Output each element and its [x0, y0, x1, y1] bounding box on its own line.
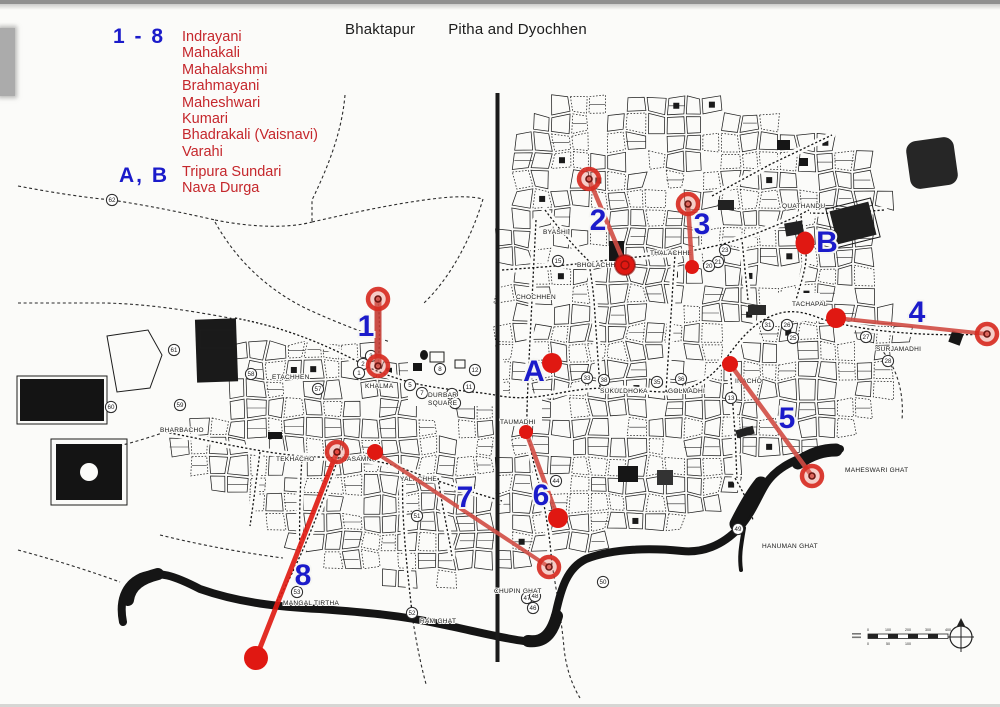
building-block [382, 441, 399, 455]
circled-number-text: 51 [414, 513, 421, 520]
place-label: DURBAR [428, 392, 457, 399]
building-block [649, 151, 665, 169]
building-block [703, 437, 721, 456]
circled-number-text: 13 [728, 395, 735, 402]
building-block [591, 512, 609, 531]
building-block [818, 379, 837, 400]
building-block [626, 113, 646, 134]
building-block [327, 514, 342, 532]
building-block [436, 570, 456, 588]
marker-3-label: 3 [694, 208, 711, 241]
scale-bar-segment [928, 634, 938, 639]
building-block [721, 155, 741, 169]
building-block [266, 513, 286, 530]
building-block [552, 95, 570, 115]
building-block [249, 341, 267, 360]
road-casing [712, 135, 832, 196]
scale-tick-bottom: 50 [886, 642, 890, 646]
legend-item: Maheshwari [182, 95, 318, 111]
building-block [228, 455, 249, 476]
building-block [722, 303, 740, 321]
scale-tick-top: 400 [945, 628, 951, 632]
building-block [798, 417, 816, 438]
marker-B-dot [796, 232, 815, 255]
marker-6-label: 6 [533, 479, 550, 512]
building-block [666, 514, 685, 531]
marker-7-start-dot [367, 444, 383, 460]
legend-list-pithas: Indrayani Mahakali Mahalakshmi Brahmayan… [182, 29, 318, 160]
circled-number-text: 25 [790, 335, 797, 342]
rural-road [215, 220, 312, 226]
building-block [551, 420, 570, 437]
building-block [588, 457, 607, 475]
temple-block [766, 444, 772, 450]
circled-number-text: 12 [472, 367, 479, 374]
scale-bar: 0100200300400050100 [852, 628, 951, 646]
map-title-city: Bhaktapur [345, 21, 415, 38]
scale-tick-top: 0 [867, 628, 869, 632]
building-block [647, 97, 666, 114]
building-block [686, 135, 701, 150]
legend-item: Bhadrakali (Vaisnavi) [182, 127, 318, 143]
compass-rose [948, 618, 974, 652]
building-block [344, 474, 362, 495]
building-block [569, 344, 589, 362]
building-block [361, 532, 380, 550]
building-block [854, 248, 873, 267]
building-block [419, 420, 437, 436]
building-block [420, 436, 437, 455]
building-block [364, 517, 380, 533]
marker-2-label: 2 [590, 204, 607, 237]
circled-number-text: 62 [109, 197, 116, 204]
building-block [512, 153, 532, 170]
building-block [265, 341, 286, 361]
building-block [838, 265, 852, 285]
building-block [685, 400, 703, 419]
pond-or-monument [618, 466, 638, 482]
building-block [665, 418, 682, 438]
building-block [741, 342, 761, 362]
legend-list-letters: Tripura Sundari Nava Durga [182, 164, 281, 197]
building-block [306, 417, 322, 437]
place-label: BHOLACHHE [577, 262, 621, 269]
building-block [284, 398, 304, 418]
building-block [569, 494, 589, 514]
rural-road [18, 550, 120, 582]
building-block [626, 494, 646, 511]
place-label: BYASHI [543, 229, 568, 236]
building-block [573, 152, 588, 170]
building-block [589, 95, 606, 113]
building-block [702, 323, 723, 342]
place-label: BHARBACHO [160, 427, 204, 434]
building-block [573, 438, 585, 455]
building-block [835, 171, 851, 189]
building-block [740, 115, 759, 132]
field-outline [107, 330, 162, 392]
building-block [382, 495, 396, 514]
place-label: SUKULDHOKA [600, 388, 648, 395]
building-block [626, 341, 646, 361]
place-label: GOLMADHI [668, 388, 705, 395]
building-block [743, 211, 757, 226]
building-block [382, 515, 396, 533]
building-block [607, 114, 624, 132]
building-block [667, 117, 685, 134]
building-block [780, 172, 797, 187]
pond-or-monument [905, 136, 959, 190]
building-block [591, 153, 605, 169]
building-block [515, 247, 533, 266]
building-block [229, 379, 244, 399]
place-label: HANUMAN GHAT [762, 543, 818, 550]
building-block [610, 438, 626, 457]
pond-or-monument [718, 200, 734, 210]
pond-or-monument [799, 158, 808, 166]
marker-5-start-dot [722, 356, 738, 372]
bhaktapur-map: 6261605958573215781091112152321203126252… [0, 0, 1000, 707]
temple-block [673, 103, 679, 109]
marker-6-start-dot [519, 425, 533, 439]
marker-5-label: 5 [779, 402, 796, 435]
building-block [759, 190, 780, 208]
legend-item: Nava Durga [182, 180, 281, 196]
building-block [821, 341, 836, 360]
rural-road [18, 303, 235, 319]
building-block [703, 133, 719, 152]
building-block [762, 365, 776, 381]
circled-number-text: 61 [171, 347, 178, 354]
building-block [608, 152, 626, 172]
scale-caption-smudge [852, 637, 861, 639]
building-block [854, 151, 873, 171]
scale-bar-segment [888, 634, 898, 639]
marker-1-end-ring [368, 356, 388, 376]
rural-road [312, 197, 483, 222]
marker-4-label: 4 [909, 296, 926, 329]
temple-block [539, 196, 545, 202]
building-block [512, 208, 530, 229]
building-block [531, 170, 548, 189]
circled-number-text: 23 [722, 247, 729, 254]
place-label: TEKHACHO [276, 456, 315, 463]
building-block [455, 550, 474, 570]
circled-number-text: 8 [438, 366, 442, 373]
building-block [819, 171, 837, 190]
building-block [455, 533, 475, 549]
building-block [667, 136, 685, 152]
building-block [688, 494, 704, 513]
marker-8-end-dot [244, 646, 268, 670]
marker-6-end-dot [548, 508, 568, 528]
building-block [818, 269, 836, 284]
building-block [554, 305, 569, 325]
building-block [666, 151, 684, 172]
marker-3-end-dot [685, 260, 699, 274]
building-block [572, 419, 590, 438]
temple-block [766, 177, 772, 183]
building-block [705, 417, 721, 436]
building-block [722, 288, 739, 303]
building-block [571, 304, 590, 323]
building-block [705, 400, 721, 419]
building-block [743, 152, 758, 169]
building-block [702, 345, 723, 360]
building-block [627, 97, 646, 111]
marker-1-start-ring [368, 289, 388, 309]
building-block [364, 495, 381, 514]
circled-number-text: 27 [863, 334, 870, 341]
building-block [854, 265, 874, 286]
building-block [649, 419, 664, 437]
temple-block [709, 102, 715, 108]
place-label: TAUMADHI [500, 419, 536, 426]
building-block [646, 228, 663, 248]
building-block [721, 133, 739, 152]
temple-block [728, 482, 734, 488]
building-block [627, 399, 646, 418]
building-block [512, 475, 533, 494]
building-block [778, 362, 796, 380]
building-block [475, 550, 493, 570]
temple-block [291, 367, 297, 373]
marker-7-label: 7 [457, 481, 474, 514]
circled-number-text: 5 [408, 382, 412, 389]
temple-block [558, 273, 564, 279]
road-casing [250, 452, 260, 526]
scale-bar-segment [908, 634, 918, 639]
marker-7-end-ring [539, 557, 559, 577]
rural-road [424, 199, 483, 303]
scale-tick-top: 300 [925, 628, 931, 632]
building-block [513, 515, 533, 533]
building-block [418, 532, 436, 551]
circled-number-text: 28 [885, 358, 892, 365]
circled-number-text: 59 [177, 402, 184, 409]
marker-A-dot [542, 353, 562, 373]
building-block [760, 248, 778, 266]
building-block [684, 306, 700, 323]
pond-or-monument [195, 318, 238, 382]
building-block [572, 114, 588, 134]
circled-number-text: 36 [678, 376, 685, 383]
building-block [684, 418, 703, 438]
marker-8-start-ring [327, 442, 347, 462]
building-block [209, 456, 227, 473]
circled-number-text: 7 [420, 390, 424, 397]
building-block [873, 381, 893, 400]
building-block [608, 305, 626, 324]
building-block [512, 189, 533, 208]
building-block [569, 532, 589, 552]
legend-item: Varahi [182, 144, 318, 160]
circled-number-text: 33 [584, 375, 591, 382]
circled-number-text: 57 [315, 386, 322, 393]
pond-or-monument [20, 379, 104, 421]
building-block [266, 493, 283, 511]
building-block [305, 399, 323, 415]
building-block [799, 379, 816, 400]
building-block [778, 379, 797, 400]
circled-number-text: 11 [466, 384, 473, 391]
temple-block [786, 253, 792, 259]
building-block [837, 398, 853, 417]
building-block [759, 132, 777, 150]
building-block [570, 97, 587, 114]
building-block [343, 401, 360, 417]
building-block [608, 192, 628, 209]
place-label: CHUPIN GHAT [494, 588, 542, 595]
building-block [418, 455, 437, 474]
building-block [609, 210, 628, 227]
building-block [609, 494, 625, 510]
pond-or-monument [413, 363, 422, 371]
building-block [646, 494, 666, 511]
building-block [551, 191, 570, 207]
temple-block [632, 518, 638, 524]
building-block [819, 326, 834, 343]
building-block [607, 341, 628, 361]
building-block [247, 399, 267, 418]
building-block [645, 190, 666, 208]
building-block [230, 399, 245, 419]
building-block [382, 569, 396, 587]
pond-or-monument [748, 305, 766, 315]
building-block [645, 514, 666, 531]
pond-or-monument [777, 140, 790, 150]
building-block [607, 132, 625, 153]
scanned-map-page: 6261605958573215781091112152321203126252… [0, 0, 1000, 707]
building-block [515, 132, 533, 151]
building-block [702, 303, 722, 321]
building-block [627, 284, 647, 302]
building-block [588, 399, 608, 416]
building-block [855, 381, 871, 397]
building-block [684, 323, 700, 342]
building-block [456, 456, 476, 476]
circled-number-text: 46 [530, 605, 537, 612]
building-block [740, 189, 759, 209]
building-block [570, 191, 589, 207]
building-block [325, 531, 342, 549]
place-label: TACHAPAL [792, 301, 828, 308]
building-block [837, 419, 856, 438]
building-block [532, 324, 552, 339]
building-block [343, 514, 363, 530]
temple-block [559, 157, 565, 163]
circled-number-text: 1 [357, 370, 361, 377]
building-block [569, 514, 589, 532]
place-label: CHOCHHEN [516, 294, 556, 301]
building-block [725, 265, 741, 285]
building-block [324, 380, 343, 399]
legend-item: Indrayani [182, 29, 318, 45]
scale-tick-bottom: 100 [905, 642, 911, 646]
building-block [570, 476, 589, 491]
river-wide-section [528, 616, 557, 641]
building-block [703, 458, 722, 476]
building-block [551, 326, 568, 342]
pond-island [80, 463, 98, 481]
building-block [572, 457, 589, 475]
circled-number-text: 26 [784, 322, 791, 329]
building-block [817, 284, 835, 302]
building-block [704, 172, 721, 190]
compass-north-arrow [957, 618, 965, 626]
building-block [327, 495, 344, 511]
building-block [211, 476, 225, 492]
building-block [645, 268, 665, 284]
marker-B-label: B [816, 226, 838, 259]
building-block [379, 417, 396, 438]
building-block [854, 170, 875, 188]
building-block [324, 552, 343, 569]
building-block [531, 153, 552, 169]
rural-road [553, 570, 580, 698]
building-block [572, 284, 590, 304]
building-block [798, 403, 816, 419]
building-block [306, 438, 324, 455]
building-block [686, 96, 700, 114]
legend-item: Mahalakshmi [182, 62, 318, 78]
building-block [569, 324, 589, 343]
building-block [591, 493, 609, 511]
marker-5-end-ring [802, 466, 822, 486]
legend-item: Tripura Sundari [182, 164, 281, 180]
circled-number-text: 50 [600, 579, 607, 586]
pond-or-monument [657, 470, 673, 485]
scale-tick-top: 200 [905, 628, 911, 632]
building-block [477, 420, 493, 437]
building-block [588, 419, 609, 436]
building-block [421, 493, 436, 510]
marker-2-end-dot [615, 255, 635, 275]
map-title: Bhaktapur Pitha and Dyochhen [345, 21, 587, 38]
building-block [608, 327, 626, 343]
building-block [269, 398, 284, 418]
building-block [608, 399, 626, 416]
pond-or-monument [268, 432, 282, 439]
building-block [569, 398, 590, 418]
building-block [534, 114, 550, 132]
building-block [380, 475, 399, 496]
circled-number-text: 2 [361, 361, 365, 368]
marker-4-start-dot [826, 308, 846, 328]
building-block [170, 438, 190, 457]
building-block [838, 342, 855, 361]
building-block [512, 493, 533, 513]
circled-number-text: 58 [248, 371, 255, 378]
circled-number-text: 20 [706, 263, 713, 270]
place-label: QUATHANDU [782, 203, 825, 210]
circled-number-text: 44 [553, 478, 560, 485]
building-block [458, 420, 475, 438]
building-block [267, 382, 284, 398]
building-block [247, 418, 266, 438]
map-title-subject: Pitha and Dyochhen [448, 21, 587, 38]
building-block [361, 550, 380, 569]
building-block [627, 190, 643, 208]
building-block [324, 360, 339, 378]
marker-4-end-ring [977, 324, 997, 344]
building-block [762, 343, 776, 362]
building-block [742, 402, 757, 418]
temple-block [519, 539, 525, 545]
building-block [743, 438, 757, 457]
building-block [607, 360, 628, 380]
building-block [703, 477, 722, 495]
